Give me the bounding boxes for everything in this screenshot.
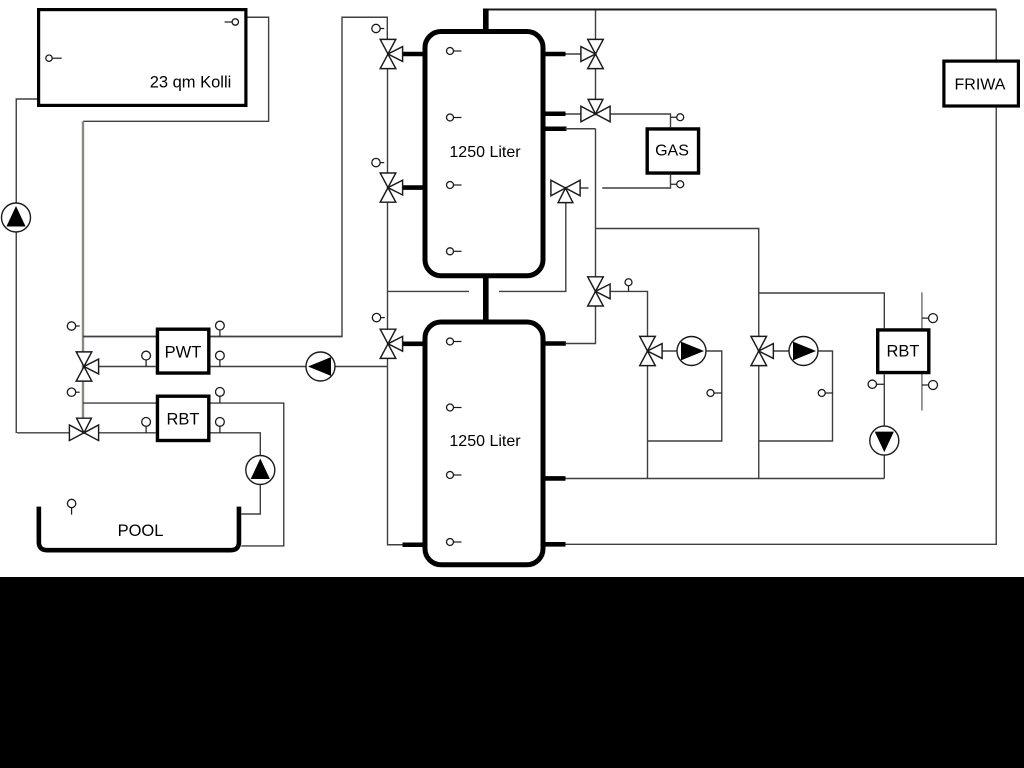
svg-text:PWT: PWT xyxy=(165,344,202,362)
svg-text:1250 Liter: 1250 Liter xyxy=(449,433,521,450)
svg-text:FRIWA: FRIWA xyxy=(955,77,1006,94)
svg-text:POOL: POOL xyxy=(118,522,164,540)
svg-text:1250 Liter: 1250 Liter xyxy=(449,144,521,161)
svg-text:RBT: RBT xyxy=(887,343,920,361)
svg-text:RBT: RBT xyxy=(167,411,200,429)
svg-text:GAS: GAS xyxy=(655,143,689,160)
svg-text:23 qm Kolli: 23 qm Kolli xyxy=(150,74,232,92)
